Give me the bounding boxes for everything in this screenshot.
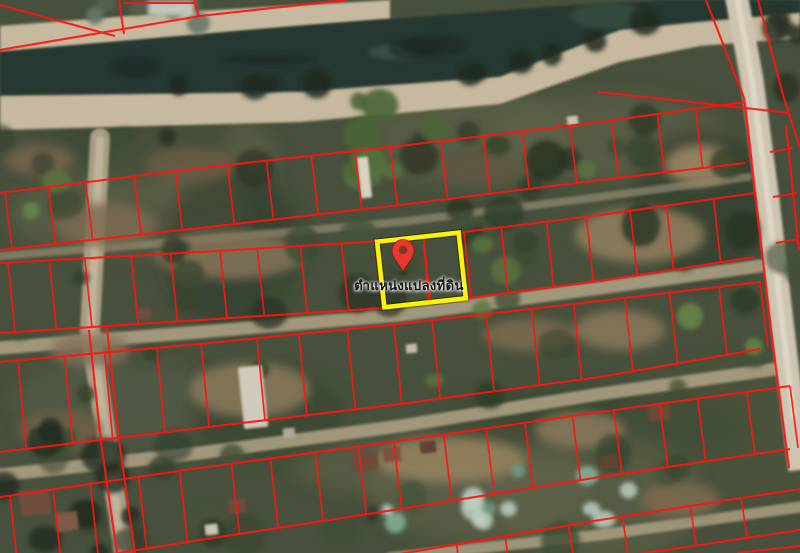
tree-blob [112, 127, 137, 146]
tree-blob [629, 7, 660, 35]
tree-blob [161, 236, 186, 264]
pin-hole [399, 246, 408, 255]
tree-blob [725, 211, 761, 250]
tree-blob [676, 257, 694, 272]
tree-blob [196, 501, 214, 515]
tree-blob [482, 502, 497, 514]
tree-blob [340, 216, 377, 259]
building [136, 307, 151, 319]
tree-blob [77, 385, 94, 403]
tree-blob [626, 134, 657, 168]
tree-blob [730, 288, 760, 314]
building [204, 523, 218, 535]
map-viewport[interactable]: ตำแหน่งแปลงที่ดิน [0, 0, 800, 553]
tree-blob [677, 303, 703, 330]
building [419, 440, 436, 454]
tree-blob [585, 31, 607, 52]
tree-blob [538, 329, 577, 360]
tree-blob [629, 103, 660, 136]
tree-blob [42, 169, 71, 192]
tree-blob [457, 121, 479, 144]
tree-blob [766, 242, 796, 274]
tree-blob [426, 374, 444, 388]
tree-blob [420, 114, 450, 141]
tree-blob [159, 128, 176, 146]
tree-blob [542, 44, 562, 66]
building [283, 427, 296, 438]
tree-blob [475, 382, 505, 409]
tree-blob [513, 230, 539, 253]
building [599, 454, 618, 470]
tree-blob [559, 147, 580, 170]
tree-blob [607, 139, 627, 156]
tree-blob [500, 501, 517, 516]
tree-blob [773, 73, 800, 103]
building [55, 511, 79, 532]
tree-blob [38, 417, 62, 442]
tree-blob [250, 297, 287, 329]
tree-blob [669, 379, 686, 397]
satellite-map-canvas[interactable] [0, 0, 800, 553]
tree-blob [578, 161, 596, 179]
tree-blob [371, 278, 407, 317]
tree-blob [470, 64, 487, 82]
tree-blob [47, 188, 83, 219]
tree-blob [509, 51, 534, 74]
tree-blob [620, 482, 637, 499]
terrain-satellite-layer [0, 0, 800, 553]
tree-blob [511, 463, 525, 477]
tree-blob [471, 236, 493, 253]
tree-blob [302, 70, 331, 99]
building [351, 450, 379, 472]
tree-blob [745, 338, 763, 355]
tree-blob [260, 76, 280, 92]
building [382, 446, 401, 463]
tree-blob [148, 456, 176, 480]
tree-blob [472, 300, 492, 320]
tree-blob [486, 136, 511, 155]
tree-blob [169, 75, 188, 96]
tree-blob [173, 260, 205, 288]
tree-blob [23, 202, 40, 220]
building [406, 343, 418, 353]
